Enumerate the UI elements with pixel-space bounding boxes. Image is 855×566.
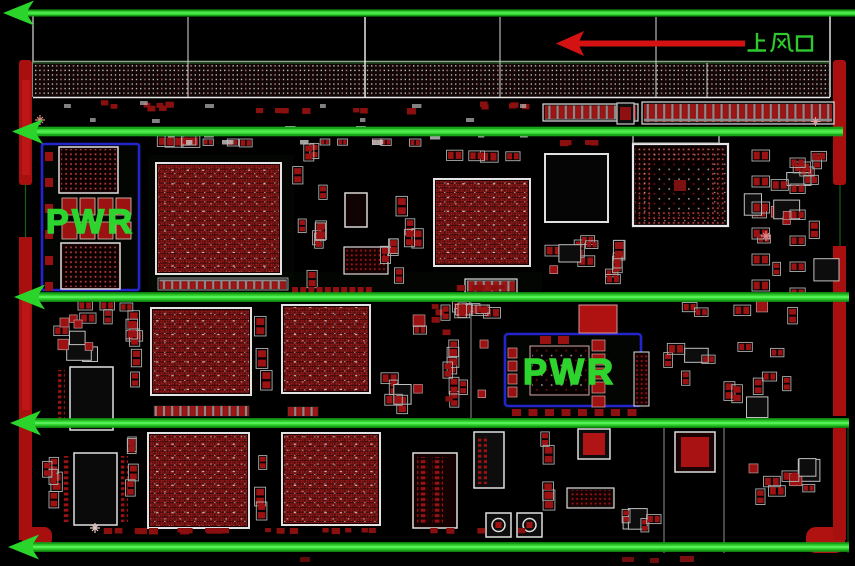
svg-text:PWR: PWR: [523, 351, 613, 392]
svg-text:PWR: PWR: [46, 203, 132, 241]
